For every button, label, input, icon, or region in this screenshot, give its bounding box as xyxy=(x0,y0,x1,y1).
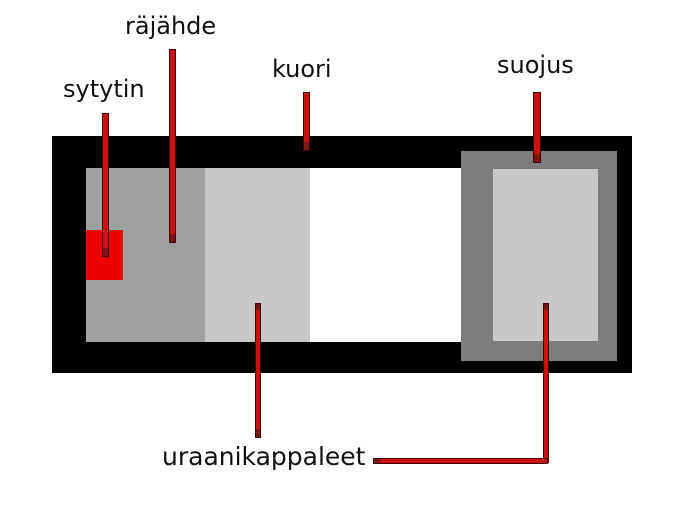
pointer-line-uranium-right xyxy=(543,303,549,463)
label-kuori: kuori xyxy=(272,56,332,82)
pointer-tip xyxy=(256,304,260,310)
gun-type-bomb-diagram: sytytin räjähde kuori suojus uraanikappa… xyxy=(0,0,683,512)
pointer-tip xyxy=(544,304,548,310)
pointer-line-uranium-horizontal xyxy=(373,458,548,464)
label-rajahde: räjähde xyxy=(125,13,216,39)
pointer-tip xyxy=(170,234,175,242)
pointer-tip xyxy=(256,429,260,437)
pointer-line-rajahde xyxy=(169,49,176,243)
label-sytytin: sytytin xyxy=(63,76,145,102)
pointer-line-suojus xyxy=(533,92,541,163)
pointer-line-sytytin xyxy=(102,113,109,257)
pointer-tip xyxy=(103,248,108,256)
pointer-line-uranium-left xyxy=(255,303,261,438)
label-suojus: suojus xyxy=(497,52,574,78)
pointer-tip xyxy=(374,459,381,463)
label-uraanikappaleet: uraanikappaleet xyxy=(162,443,365,471)
pointer-line-kuori xyxy=(303,92,310,151)
pointer-tip xyxy=(304,142,309,150)
pointer-tip xyxy=(534,154,540,162)
